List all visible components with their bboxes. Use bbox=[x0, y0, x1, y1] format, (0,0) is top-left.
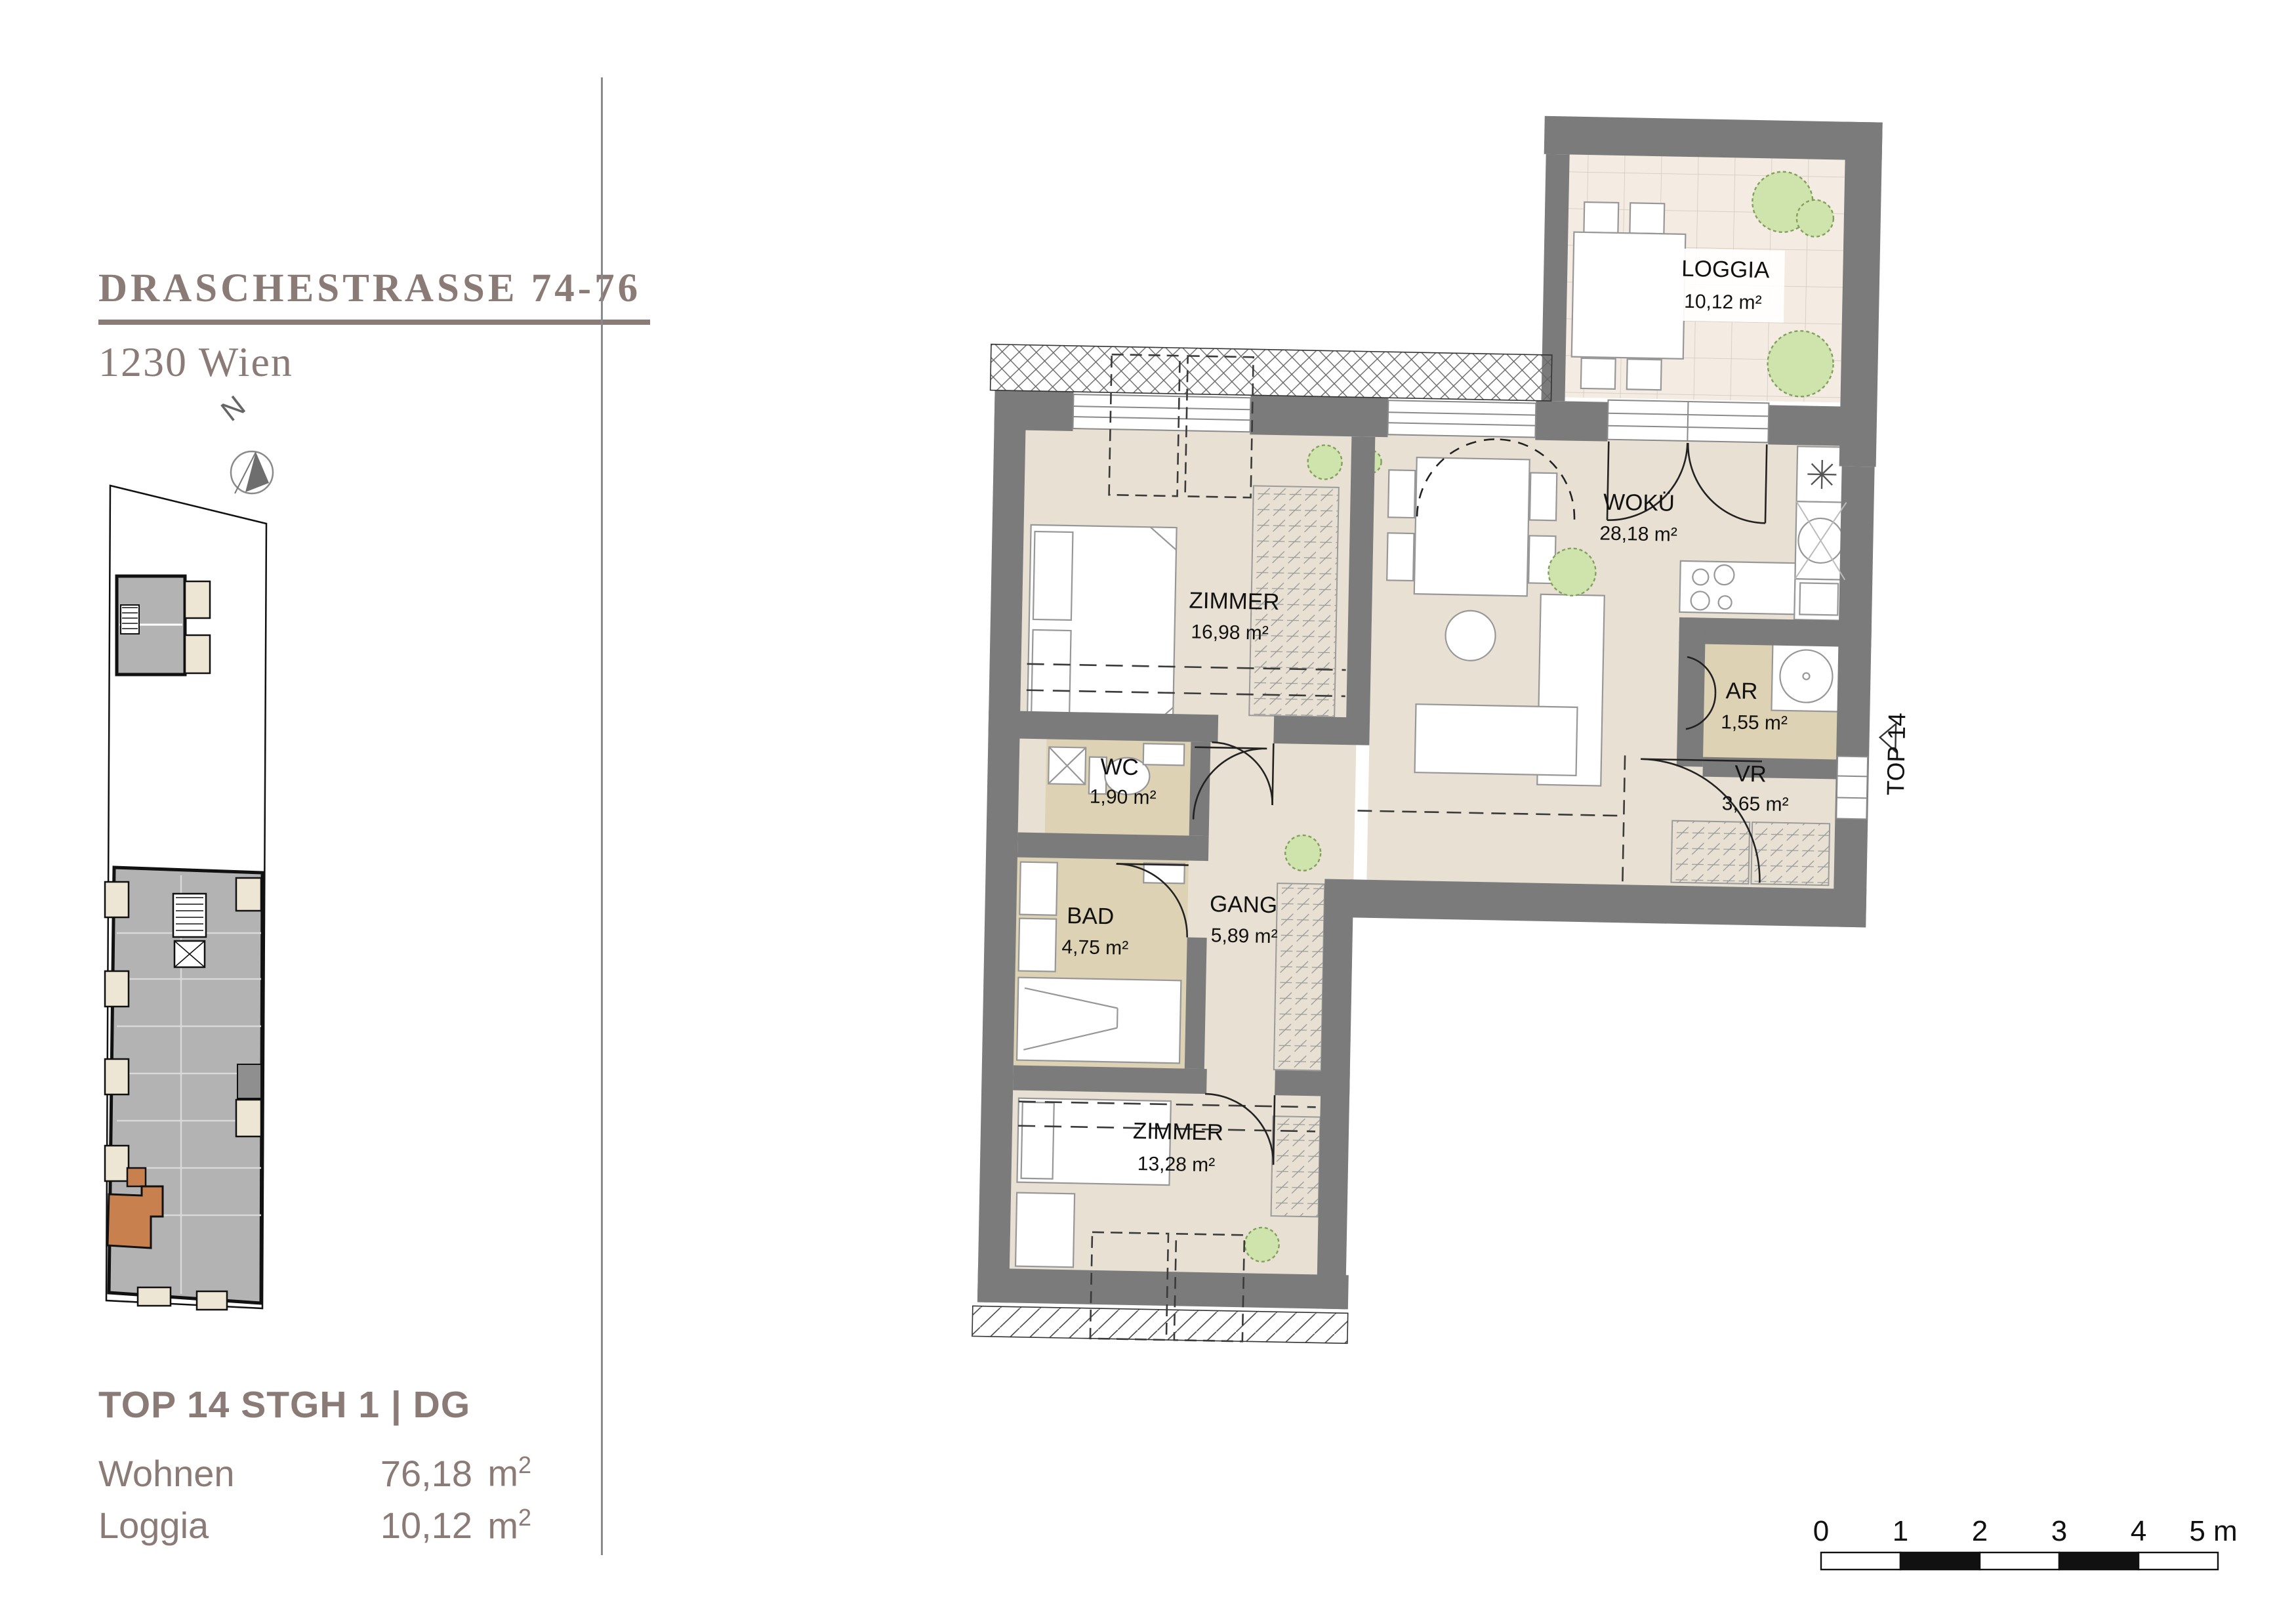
bath-washer bbox=[1019, 862, 1057, 915]
room-label-ar: AR bbox=[1725, 678, 1757, 704]
room-label-vr: VR bbox=[1734, 761, 1767, 787]
room-area-loggia: 10,12 m² bbox=[1684, 291, 1762, 314]
sofa-horizontal bbox=[1415, 704, 1578, 776]
unit-heading: TOP 14 STGH 1 | DG bbox=[98, 1383, 531, 1426]
bed-pillow bbox=[1033, 531, 1073, 620]
bed-pillow bbox=[1021, 1102, 1054, 1179]
room-label-wokue: WOKÜ bbox=[1603, 489, 1675, 516]
loggia-chair bbox=[1630, 203, 1664, 234]
loggia-chair bbox=[1581, 358, 1616, 389]
area-label: Wohnen bbox=[98, 1452, 348, 1495]
north-label: N bbox=[215, 390, 251, 428]
entrance-label: TOP 14 bbox=[1882, 713, 1910, 796]
project-title-block: DRASCHESTRASSE 74-76 1230 Wien bbox=[98, 266, 650, 386]
room-area-bad: 4,75 m² bbox=[1061, 936, 1128, 959]
project-city: 1230 Wien bbox=[98, 338, 650, 386]
project-title: DRASCHESTRASSE 74-76 bbox=[98, 266, 650, 325]
apartment-floorplan: LOGGIA 10,12 m² WOKÜ 28,18 m² ZIMMER 16,… bbox=[941, 87, 1948, 1360]
loggia-chair bbox=[1584, 202, 1618, 233]
room-area-gang: 5,89 m² bbox=[1211, 925, 1278, 947]
roof-hatch-top bbox=[991, 344, 1552, 401]
floorplan-page: DRASCHESTRASSE 74-76 1230 Wien N bbox=[0, 0, 2296, 1624]
room-label-bad: BAD bbox=[1067, 903, 1115, 929]
bed-pillow bbox=[1031, 630, 1071, 718]
unit-info: TOP 14 STGH 1 | DG Wohnen 76,18 m2 Loggi… bbox=[98, 1383, 531, 1556]
room-label-loggia: LOGGIA bbox=[1681, 256, 1771, 283]
side-table bbox=[1445, 610, 1496, 661]
room-area-wc: 1,90 m² bbox=[1090, 786, 1157, 809]
area-unit: m2 bbox=[472, 1451, 531, 1495]
dining-chair bbox=[1387, 533, 1414, 581]
area-value: 76,18 bbox=[348, 1452, 472, 1495]
scale-tick: 1 bbox=[1893, 1516, 1908, 1547]
area-value: 10,12 bbox=[348, 1504, 472, 1547]
kitchen-counter bbox=[1679, 561, 1795, 614]
area-row-wohnen: Wohnen 76,18 m2 bbox=[98, 1451, 531, 1495]
scale-tick: 0 bbox=[1813, 1516, 1829, 1547]
scale-tick: 2 bbox=[1972, 1516, 1988, 1547]
entrance-marker: TOP 14 bbox=[1879, 713, 1910, 796]
scale-tick: 4 bbox=[2131, 1516, 2146, 1547]
dining-chair bbox=[1388, 470, 1415, 518]
bathtub bbox=[1017, 978, 1181, 1064]
scale-tick: 3 bbox=[2051, 1516, 2067, 1547]
loggia-chair bbox=[1627, 359, 1662, 390]
site-plan bbox=[97, 474, 294, 1330]
bath-washer bbox=[1019, 919, 1057, 972]
room-label-gang: GANG bbox=[1210, 891, 1278, 918]
roof-hatch-bottom bbox=[972, 1306, 1348, 1343]
washing-machine bbox=[1771, 642, 1841, 712]
room-label-zimmer2: ZIMMER bbox=[1133, 1118, 1224, 1146]
wc-sink bbox=[1143, 743, 1185, 765]
fridge-star-icon bbox=[1807, 460, 1837, 489]
vertical-divider bbox=[601, 77, 603, 1555]
room-area-wokue: 28,18 m² bbox=[1599, 522, 1677, 545]
area-label: Loggia bbox=[98, 1504, 348, 1547]
scale-bar: 0 1 2 3 4 5 m bbox=[1811, 1516, 2244, 1591]
room-label-zimmer1: ZIMMER bbox=[1189, 587, 1280, 615]
scale-tick: 5 m bbox=[2189, 1516, 2237, 1547]
room-label-wc: WC bbox=[1100, 754, 1139, 780]
room-area-vr: 3,65 m² bbox=[1722, 793, 1789, 816]
room-area-zimmer2: 13,28 m² bbox=[1138, 1153, 1216, 1176]
dining-chair bbox=[1530, 472, 1557, 520]
area-unit: m2 bbox=[472, 1504, 531, 1547]
dining-table bbox=[1414, 457, 1530, 596]
room-area-zimmer1: 16,98 m² bbox=[1191, 621, 1269, 644]
area-row-loggia: Loggia 10,12 m2 bbox=[98, 1504, 531, 1547]
entrance-door bbox=[1836, 757, 1868, 820]
room-area-ar: 1,55 m² bbox=[1721, 711, 1788, 734]
desk bbox=[1015, 1193, 1075, 1268]
